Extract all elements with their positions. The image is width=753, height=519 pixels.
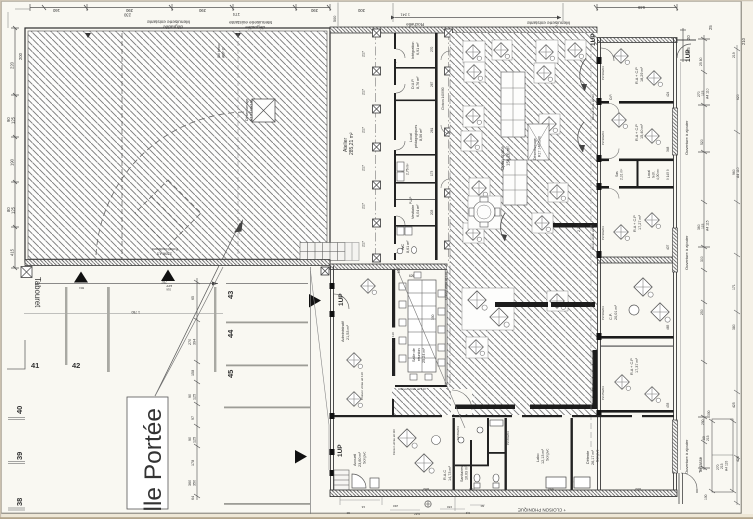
svg-text:217: 217 <box>362 89 366 95</box>
svg-text:220: 220 <box>10 61 15 69</box>
svg-text:PV 90x204: PV 90x204 <box>601 226 605 240</box>
svg-text:Portail coulissant: Portail coulissant <box>152 247 178 251</box>
svg-text:1UP: 1UP <box>685 49 692 62</box>
svg-text:Labo: Labo <box>536 454 540 462</box>
svg-text:Sol béton: Sol béton <box>217 44 221 58</box>
svg-text:Salle de: Salle de <box>412 348 416 362</box>
svg-text:Local: Local <box>409 133 413 142</box>
svg-text:380: 380 <box>732 324 736 330</box>
svg-text:Menuiserie existante: Menuiserie existante <box>527 21 570 26</box>
svg-text:90: 90 <box>188 437 192 441</box>
svg-text:620: 620 <box>736 94 740 100</box>
svg-text:18,29 m²: 18,29 m² <box>640 66 644 82</box>
svg-text:R.A.C: R.A.C <box>443 470 447 480</box>
svg-text:350: 350 <box>193 480 197 486</box>
svg-text:Administratif: Administratif <box>341 320 345 342</box>
svg-text:203: 203 <box>430 209 434 215</box>
svg-text:217: 217 <box>362 241 366 247</box>
svg-text:Cloison séparation phonique: Cloison séparation phonique <box>591 354 595 390</box>
svg-text:EPP: EPP <box>166 284 172 288</box>
svg-text:20: 20 <box>686 35 691 40</box>
svg-text:97: 97 <box>191 416 195 420</box>
svg-text:350: 350 <box>431 314 435 320</box>
svg-text:Sol pvc: Sol pvc <box>596 449 600 462</box>
svg-text:17,27 m²: 17,27 m² <box>638 214 642 230</box>
svg-text:520: 520 <box>700 139 704 145</box>
svg-text:8,76 m²: 8,76 m² <box>416 76 420 89</box>
svg-text:Tabouret: Tabouret <box>33 277 42 308</box>
svg-text:300: 300 <box>707 410 711 416</box>
svg-text:217: 217 <box>362 203 366 209</box>
svg-text:Sol pvc: Sol pvc <box>546 448 550 461</box>
svg-text:8,56 m²: 8,56 m² <box>419 128 423 141</box>
svg-text:174: 174 <box>232 12 240 17</box>
svg-text:215: 215 <box>720 463 724 469</box>
svg-text:16: 16 <box>361 505 365 509</box>
svg-text:600: 600 <box>635 487 641 491</box>
svg-text:626: 626 <box>409 274 415 278</box>
svg-text:433: 433 <box>666 402 670 408</box>
svg-text:R.A + C.P: R.A + C.P <box>635 67 639 84</box>
svg-text:AEP ∅: AEP ∅ <box>222 47 226 58</box>
svg-text:250: 250 <box>701 419 705 425</box>
svg-text:Intégration: Intégration <box>411 42 415 59</box>
svg-text:C.P.: C.P. <box>609 313 613 320</box>
svg-text:270: 270 <box>430 46 434 52</box>
svg-text:45: 45 <box>226 370 235 378</box>
svg-text:Cloison vitrée alt 110: Cloison vitrée alt 110 <box>444 272 448 300</box>
svg-text:PV 80x204: PV 80x204 <box>506 431 510 445</box>
svg-text:65: 65 <box>191 296 195 300</box>
svg-text:12,13 m²: 12,13 m² <box>541 448 545 464</box>
svg-text:25,24 m²: 25,24 m² <box>422 347 426 363</box>
svg-text:P.L.P: P.L.P <box>409 197 413 204</box>
svg-text:Menuiserie existante: Menuiserie existante <box>147 20 190 25</box>
svg-text:Cloison vitrée alt 110: Cloison vitrée alt 110 <box>591 224 595 250</box>
svg-text:267: 267 <box>430 81 434 87</box>
svg-text:424: 424 <box>666 91 670 97</box>
svg-text:649: 649 <box>637 5 645 10</box>
svg-text:240: 240 <box>393 504 398 508</box>
svg-text:125: 125 <box>193 394 197 400</box>
svg-text:O.P.: O.P. <box>609 94 613 100</box>
svg-text:15,40 m²: 15,40 m² <box>640 123 644 139</box>
svg-text:428: 428 <box>736 456 740 462</box>
svg-text:217: 217 <box>362 51 366 57</box>
svg-text:230: 230 <box>123 13 131 18</box>
svg-text:A4 110: A4 110 <box>725 461 729 471</box>
svg-text:261: 261 <box>430 127 434 133</box>
svg-text:8,87: 8,87 <box>414 512 420 516</box>
svg-text:160: 160 <box>52 8 60 13</box>
svg-text:R.A + C.P: R.A + C.P <box>635 124 639 141</box>
svg-text:Rochelle: Rochelle <box>406 22 424 27</box>
svg-text:21,53 m²: 21,53 m² <box>346 324 350 340</box>
svg-text:39: 39 <box>15 452 24 460</box>
svg-text:360: 360 <box>188 480 192 486</box>
svg-text:3,50M 4,5: 3,50M 4,5 <box>157 252 172 256</box>
svg-text:A4 110: A4 110 <box>736 167 740 178</box>
svg-text:R17 140x140: R17 140x140 <box>250 100 254 121</box>
svg-text:Cloison vitrée alt 110: Cloison vitrée alt 110 <box>360 372 364 400</box>
svg-text:500: 500 <box>333 16 337 22</box>
svg-text:394: 394 <box>193 339 197 345</box>
svg-text:pédagogiques: pédagogiques <box>414 125 418 148</box>
svg-text:dégradée: dégradée <box>163 25 183 30</box>
svg-text:Désenfumage: Désenfumage <box>533 138 537 160</box>
svg-text:217: 217 <box>362 165 366 171</box>
svg-text:40: 40 <box>15 406 24 414</box>
svg-text:2,76 m²: 2,76 m² <box>406 163 410 175</box>
svg-text:43: 43 <box>226 291 235 299</box>
svg-text:210: 210 <box>741 37 746 45</box>
svg-text:Ouverture à ajouter: Ouverture à ajouter <box>684 120 689 155</box>
svg-text:390: 390 <box>198 8 206 13</box>
svg-text:60: 60 <box>480 504 484 508</box>
svg-text:9 145 9: 9 145 9 <box>666 169 670 180</box>
svg-text:285,21 m²: 285,21 m² <box>349 132 355 155</box>
svg-text:Sas: Sas <box>615 171 619 177</box>
svg-text:390: 390 <box>310 8 318 13</box>
svg-text:Désenfumage: Désenfumage <box>245 99 249 121</box>
svg-text:26,17 m²: 26,17 m² <box>591 449 595 465</box>
svg-text:125: 125 <box>193 437 197 443</box>
svg-text:Cloison vitrée alt 110: Cloison vitrée alt 110 <box>398 387 426 391</box>
svg-text:Détente: Détente <box>586 451 590 464</box>
svg-text:Menuiserie existante: Menuiserie existante <box>229 20 272 25</box>
svg-text:38: 38 <box>15 498 24 506</box>
svg-text:215: 215 <box>706 435 710 441</box>
svg-text:Cloison 140X80: Cloison 140X80 <box>441 87 445 110</box>
svg-text:270: 270 <box>188 339 192 345</box>
svg-text:6,91 m²: 6,91 m² <box>416 42 420 55</box>
svg-text:100: 100 <box>704 494 708 500</box>
svg-text:654: 654 <box>79 286 84 290</box>
svg-text:8,61 m²: 8,61 m² <box>406 240 410 253</box>
svg-text:R.A + C.P: R.A + C.P <box>633 215 637 232</box>
svg-text:17,37 m²: 17,37 m² <box>635 357 639 373</box>
svg-text:réunion: réunion <box>417 348 421 361</box>
svg-text:300: 300 <box>357 8 365 13</box>
svg-text:171: 171 <box>732 284 736 290</box>
svg-text:390: 390 <box>125 8 133 13</box>
svg-text:+ CLOISON PHONIQUE: + CLOISON PHONIQUE <box>518 508 566 513</box>
svg-text:10,03 m²: 10,03 m² <box>465 465 469 480</box>
svg-text:PV 90x204: PV 90x204 <box>601 131 605 145</box>
svg-text:150: 150 <box>397 267 401 273</box>
svg-text:178: 178 <box>191 460 195 466</box>
svg-text:1UP: 1UP <box>337 444 344 457</box>
svg-text:Open space: Open space <box>500 146 505 170</box>
svg-text:Sanitaires: Sanitaires <box>460 466 464 482</box>
svg-text:1 241: 1 241 <box>400 13 410 17</box>
svg-text:990: 990 <box>548 487 554 491</box>
svg-text:300: 300 <box>700 256 704 262</box>
svg-text:4,00 m²: 4,00 m² <box>656 168 660 180</box>
svg-text:23,60 m²: 23,60 m² <box>358 451 362 467</box>
svg-text:42: 42 <box>72 361 80 370</box>
svg-text:Cloison vitrée alt 110: Cloison vitrée alt 110 <box>391 332 395 360</box>
svg-text:219: 219 <box>732 52 736 58</box>
svg-text:64: 64 <box>191 496 195 500</box>
svg-text:90: 90 <box>188 394 192 398</box>
svg-text:016: 016 <box>166 288 171 292</box>
svg-text:465: 465 <box>666 324 670 330</box>
svg-text:PV 65x204: PV 65x204 <box>601 386 605 400</box>
svg-text:Ouverture à ajouter: Ouverture à ajouter <box>684 235 689 270</box>
svg-text:125: 125 <box>11 116 16 124</box>
svg-text:Vestiaire: Vestiaire <box>411 205 415 219</box>
svg-text:A4 115: A4 115 <box>706 220 710 231</box>
svg-text:2,31 m²: 2,31 m² <box>620 168 624 180</box>
svg-text:425: 425 <box>732 402 736 408</box>
svg-text:150: 150 <box>447 505 452 509</box>
svg-text:PV 90x204: PV 90x204 <box>601 306 605 320</box>
svg-text:Local: Local <box>647 170 651 178</box>
svg-text:150,20 m²: 150,20 m² <box>506 146 511 166</box>
svg-text:Sol pvc: Sol pvc <box>363 451 367 464</box>
svg-text:_: _ <box>394 59 397 63</box>
svg-text:125: 125 <box>11 206 16 214</box>
svg-text:Accueil: Accueil <box>353 454 357 466</box>
svg-text:tech.: tech. <box>652 171 656 178</box>
svg-text:PV 90x204: PV 90x204 <box>601 66 605 80</box>
svg-text:R17 140x140: R17 140x140 <box>538 136 542 157</box>
svg-text:R.A + C.P: R.A + C.P <box>630 358 634 375</box>
svg-text:890: 890 <box>423 487 429 491</box>
svg-text:Cloison vitrée alt 110: Cloison vitrée alt 110 <box>591 94 595 120</box>
svg-text:158: 158 <box>191 370 195 376</box>
svg-text:Cloison vitrée alt 110: Cloison vitrée alt 110 <box>392 429 396 455</box>
svg-text:415: 415 <box>10 248 15 256</box>
svg-text:2 250: 2 250 <box>577 223 581 232</box>
svg-text:190: 190 <box>10 158 15 166</box>
svg-text:A4 110: A4 110 <box>706 88 710 99</box>
svg-text:44: 44 <box>226 329 235 338</box>
svg-text:6,04 m²: 6,04 m² <box>416 204 420 217</box>
svg-text:lle Portée: lle Portée <box>140 408 167 512</box>
svg-text:Terrasse: Terrasse <box>698 456 703 473</box>
svg-text:115: 115 <box>701 223 705 229</box>
svg-text:Ouverture à ajouter: Ouverture à ajouter <box>684 439 689 474</box>
svg-text:250: 250 <box>700 309 704 315</box>
svg-text:348: 348 <box>666 146 670 152</box>
svg-text:D.U.P.: D.U.P. <box>411 79 415 89</box>
svg-text:9,2: 9,2 <box>465 511 470 515</box>
svg-text:25: 25 <box>708 25 713 30</box>
svg-text:20,01 m²: 20,01 m² <box>614 304 618 320</box>
svg-text:PV 80x204: PV 80x204 <box>456 426 460 440</box>
svg-text:14,73 m²: 14,73 m² <box>448 465 452 481</box>
svg-text:407: 407 <box>666 244 670 250</box>
svg-text:90: 90 <box>346 511 350 515</box>
svg-text:115: 115 <box>701 90 705 96</box>
svg-text:200: 200 <box>18 52 23 60</box>
svg-text:25 80: 25 80 <box>699 57 703 66</box>
svg-text:1 780: 1 780 <box>131 310 140 314</box>
svg-text:41: 41 <box>31 361 39 370</box>
svg-text:1UP: 1UP <box>590 33 597 46</box>
svg-text:173: 173 <box>430 170 434 176</box>
svg-text:217: 217 <box>362 127 366 133</box>
svg-text:150: 150 <box>469 487 475 491</box>
